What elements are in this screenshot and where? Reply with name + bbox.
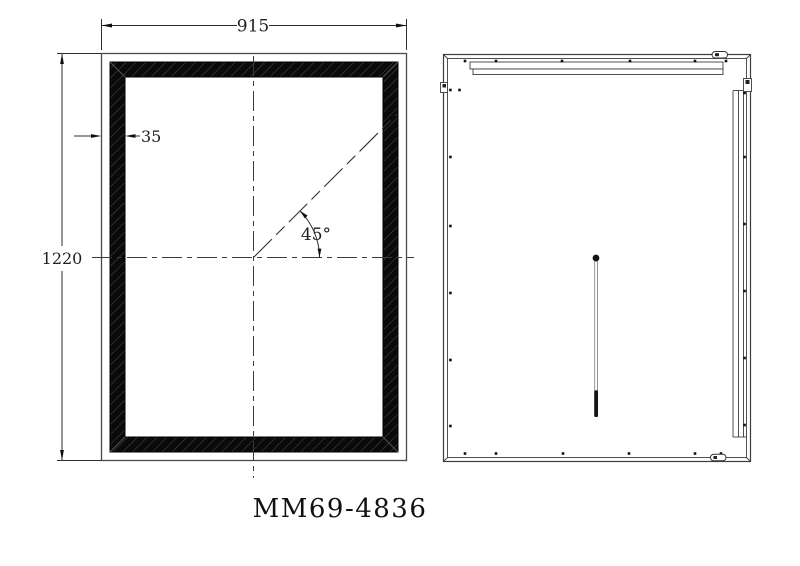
cord-plug-tip: [594, 391, 598, 418]
width-dimension: 915: [102, 17, 407, 51]
height-dimension-label: 1220: [42, 249, 83, 268]
cord-ball: [593, 255, 600, 262]
arrowhead-top: [60, 54, 64, 65]
model-number: MM69-4836: [253, 494, 428, 524]
front-view: 45° 915 1220 35: [42, 17, 414, 479]
touch-switch-top: [712, 52, 728, 59]
back-view: [441, 52, 752, 462]
angle-dimension-label: 45°: [301, 225, 331, 245]
drawing-canvas: 45° 915 1220 35: [0, 0, 800, 566]
frame-width-dimension-label: 35: [141, 127, 161, 146]
hanging-rail: [470, 62, 723, 75]
mounting-clip-left: [441, 83, 448, 93]
hanging-rail-bar: [470, 62, 723, 69]
arrowhead-left: [102, 24, 113, 28]
arrowhead-bottom: [60, 450, 64, 461]
cable-exit-bottom: [711, 454, 727, 461]
mounting-clip-right: [744, 79, 752, 92]
hanging-rail-lip: [473, 69, 723, 75]
width-dimension-label: 915: [237, 17, 269, 37]
arrowhead-right: [396, 24, 407, 28]
cord-stem: [595, 262, 598, 391]
technical-drawing: 45° 915 1220 35: [0, 0, 800, 566]
arrowhead-right: [91, 134, 102, 138]
